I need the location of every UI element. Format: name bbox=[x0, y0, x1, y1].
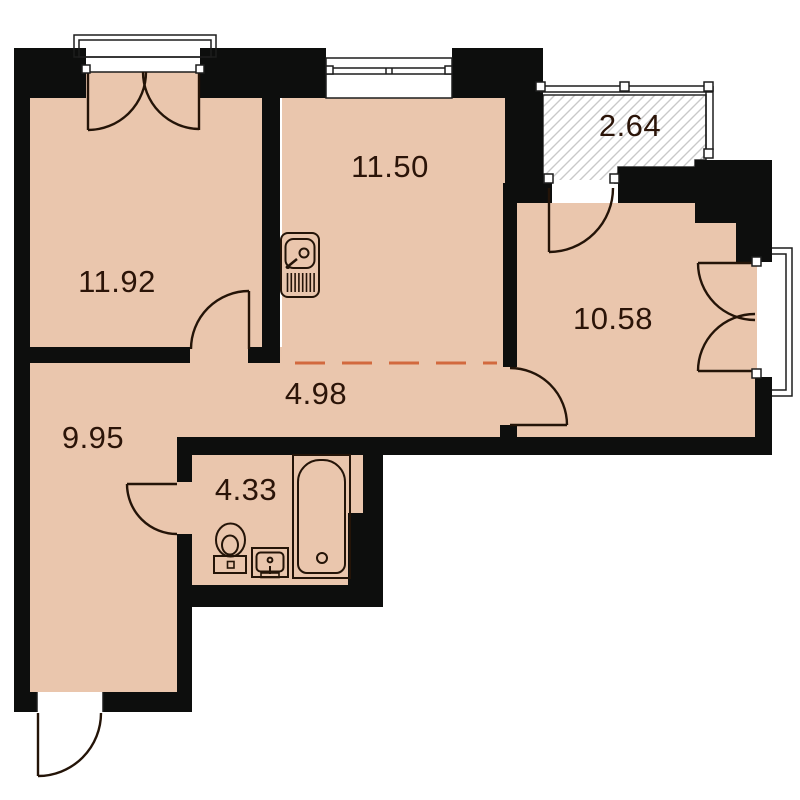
wall-segment bbox=[503, 203, 517, 367]
floor-plan-svg: 11.92 11.50 2.64 10.58 4.98 9.95 4.33 bbox=[0, 0, 800, 800]
wall-segment bbox=[500, 425, 517, 437]
wall-segment bbox=[262, 98, 280, 363]
room-label-9-95: 9.95 bbox=[62, 420, 124, 455]
railing-right-outer bbox=[772, 248, 792, 396]
room-label-11-50: 11.50 bbox=[351, 149, 429, 184]
railing-post bbox=[704, 149, 713, 158]
wall-segment bbox=[103, 692, 192, 712]
entrance-door-recess bbox=[37, 692, 103, 712]
floor-room-bottom-left bbox=[30, 363, 177, 692]
window-end-block bbox=[326, 66, 333, 74]
jamb-mark bbox=[752, 369, 761, 378]
floor-kitchen-living bbox=[282, 72, 505, 367]
floor-room-top-left bbox=[30, 60, 262, 347]
balcony-door-recess-top-left bbox=[86, 48, 200, 72]
wall-segment bbox=[248, 347, 262, 363]
wall-segment bbox=[14, 98, 30, 712]
wall-segment bbox=[736, 223, 772, 262]
wall-segment bbox=[14, 692, 37, 712]
railing-post bbox=[536, 82, 545, 91]
railing-post bbox=[704, 82, 713, 91]
jamb-mark bbox=[544, 174, 553, 183]
room-label-4-98: 4.98 bbox=[285, 376, 347, 411]
wall-segment bbox=[177, 585, 383, 607]
jamb-mark bbox=[610, 174, 619, 183]
railing-post bbox=[620, 82, 629, 91]
room-label-10-58: 10.58 bbox=[573, 301, 653, 336]
floor-bathroom-door-opening bbox=[177, 482, 192, 534]
wall-segment bbox=[695, 160, 772, 223]
door-arc bbox=[38, 713, 101, 776]
wall-segment bbox=[363, 455, 383, 607]
kitchen-window bbox=[326, 58, 452, 98]
wall-segment bbox=[177, 455, 192, 482]
wall-segment bbox=[177, 437, 772, 455]
wall-segment bbox=[30, 347, 190, 363]
wall-segment bbox=[452, 48, 543, 98]
wall-segment bbox=[200, 48, 326, 98]
wall-segment bbox=[503, 183, 552, 203]
railing-right-inner bbox=[772, 254, 786, 390]
wall-segment bbox=[505, 98, 543, 183]
window-end-block bbox=[445, 66, 452, 74]
jamb-mark bbox=[752, 257, 761, 266]
jamb-mark bbox=[196, 65, 204, 73]
floor-plan-canvas: 11.92 11.50 2.64 10.58 4.98 9.95 4.33 bbox=[0, 0, 800, 800]
entrance-door bbox=[38, 713, 101, 776]
wall-segment bbox=[177, 534, 192, 712]
wall-segment bbox=[14, 48, 86, 98]
window-frame bbox=[326, 58, 452, 98]
jamb-mark bbox=[82, 65, 90, 73]
room-label-4-33: 4.33 bbox=[215, 472, 277, 507]
room-label-2-64: 2.64 bbox=[599, 108, 661, 143]
wall-segment bbox=[755, 377, 772, 437]
wall-segment bbox=[618, 167, 695, 203]
balcony-door-recess-right-top bbox=[552, 180, 614, 201]
floor-hall-door-opening bbox=[503, 367, 517, 425]
room-label-11-92: 11.92 bbox=[78, 264, 156, 299]
